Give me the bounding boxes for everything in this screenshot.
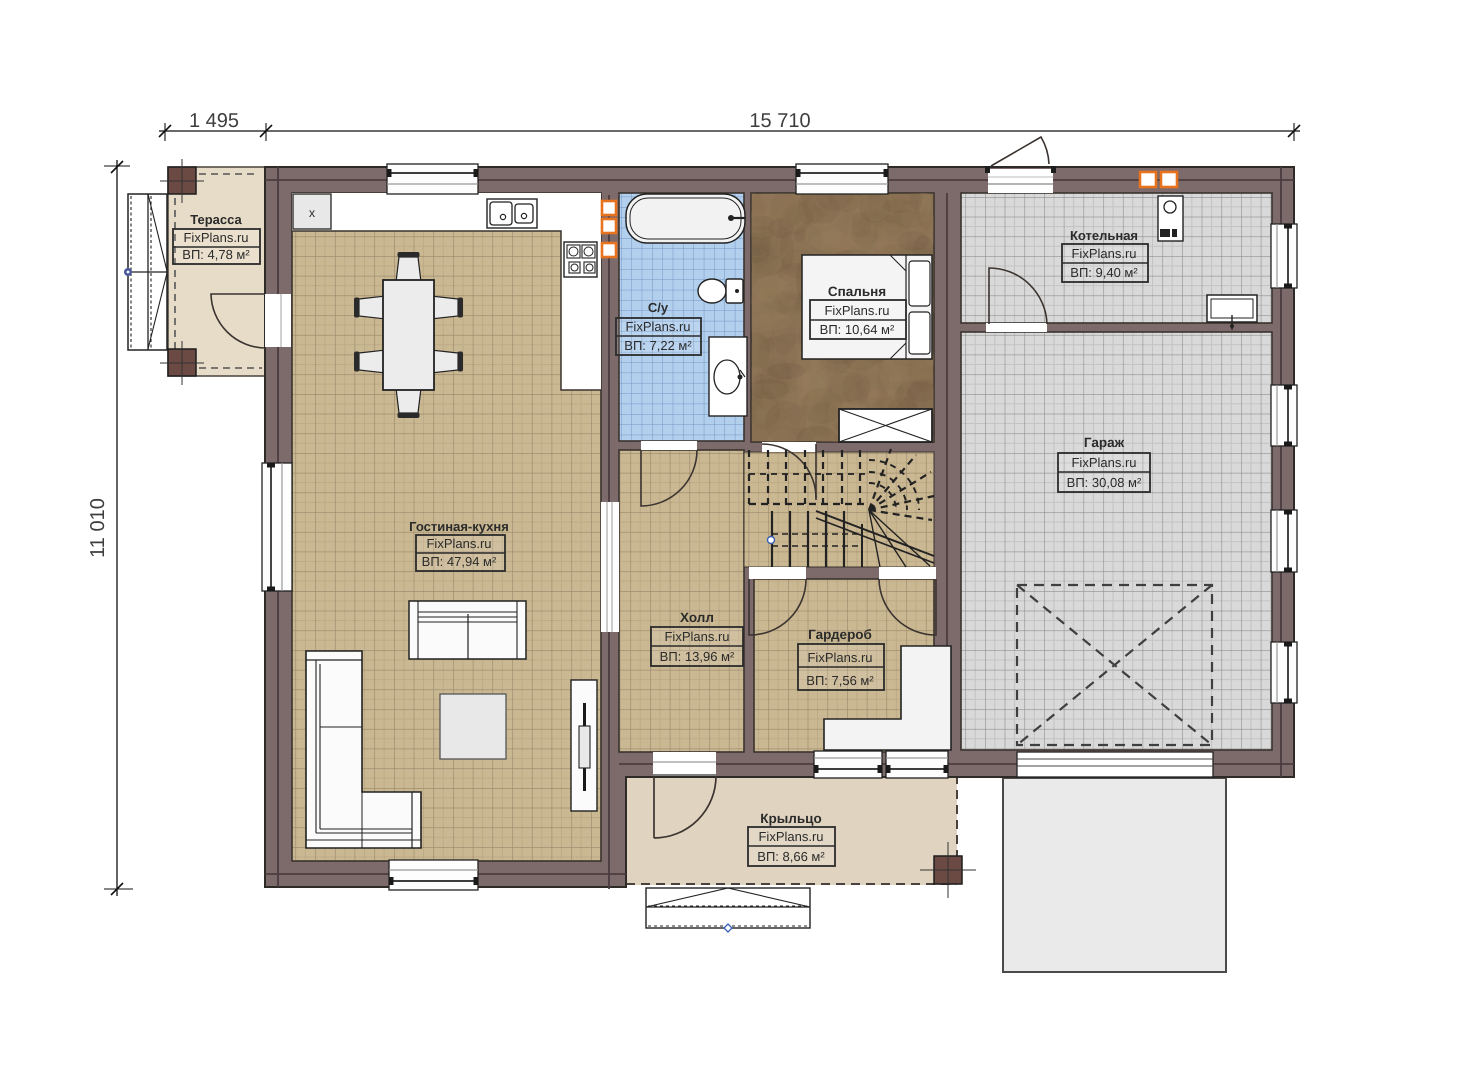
svg-text:1 495: 1 495 — [189, 110, 239, 132]
svg-text:FixPlans.ru: FixPlans.ru — [1071, 455, 1136, 470]
svg-text:Котельная: Котельная — [1070, 228, 1138, 243]
svg-text:11 010: 11 010 — [87, 498, 109, 558]
svg-text:ВП: 10,64 м²: ВП: 10,64 м² — [820, 322, 895, 337]
svg-text:Гараж: Гараж — [1084, 435, 1125, 450]
svg-text:Гостиная-кухня: Гостиная-кухня — [409, 519, 509, 534]
svg-text:FixPlans.ru: FixPlans.ru — [758, 829, 823, 844]
svg-text:FixPlans.ru: FixPlans.ru — [183, 230, 248, 245]
svg-text:Терасса: Терасса — [190, 212, 242, 227]
svg-text:FixPlans.ru: FixPlans.ru — [664, 629, 729, 644]
svg-text:ВП: 7,56 м²: ВП: 7,56 м² — [806, 673, 874, 688]
svg-text:Холл: Холл — [680, 610, 714, 625]
svg-text:Спальня: Спальня — [828, 284, 886, 299]
svg-text:ВП: 47,94 м²: ВП: 47,94 м² — [422, 554, 497, 569]
svg-text:ВП: 4,78 м²: ВП: 4,78 м² — [182, 247, 250, 262]
svg-text:15 710: 15 710 — [749, 110, 810, 132]
svg-text:ВП: 13,96 м²: ВП: 13,96 м² — [660, 649, 735, 664]
svg-text:ВП: 9,40 м²: ВП: 9,40 м² — [1070, 265, 1138, 280]
svg-text:FixPlans.ru: FixPlans.ru — [1071, 246, 1136, 261]
svg-text:Гардероб: Гардероб — [808, 627, 872, 642]
svg-text:ВП: 8,66 м²: ВП: 8,66 м² — [757, 849, 825, 864]
svg-text:FixPlans.ru: FixPlans.ru — [824, 303, 889, 318]
svg-text:FixPlans.ru: FixPlans.ru — [807, 650, 872, 665]
svg-text:ВП: 30,08 м²: ВП: 30,08 м² — [1067, 475, 1142, 490]
svg-text:С/у: С/у — [648, 300, 669, 315]
svg-text:Крыльцо: Крыльцо — [760, 811, 821, 826]
svg-text:x: x — [309, 206, 316, 220]
svg-text:FixPlans.ru: FixPlans.ru — [625, 319, 690, 334]
svg-text:ВП: 7,22 м²: ВП: 7,22 м² — [624, 338, 692, 353]
svg-text:FixPlans.ru: FixPlans.ru — [426, 536, 491, 551]
